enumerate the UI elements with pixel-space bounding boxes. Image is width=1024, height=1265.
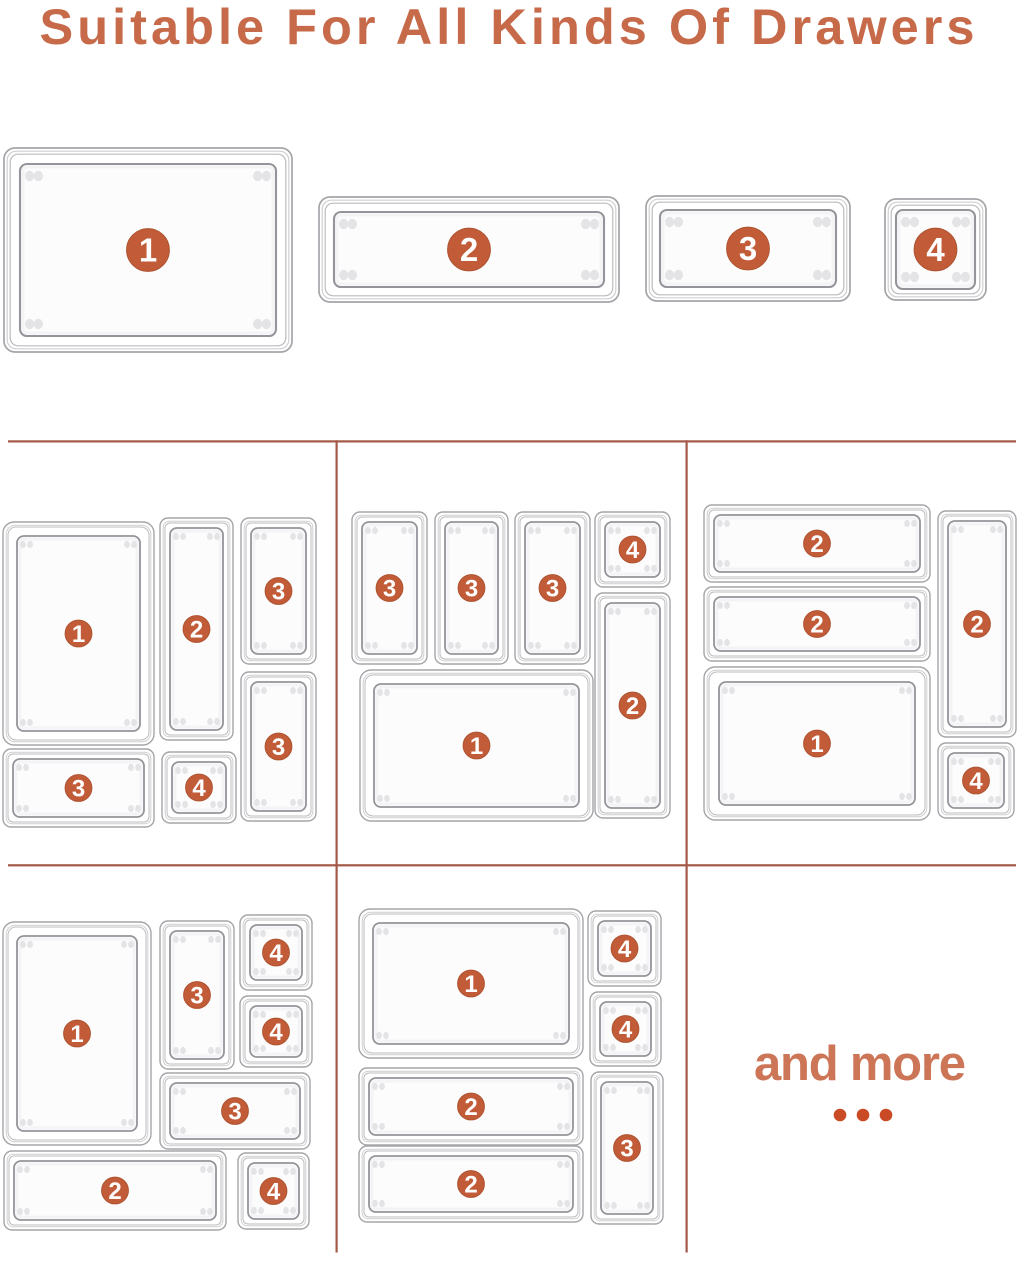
svg-text:2: 2 <box>464 1094 477 1121</box>
svg-text:3: 3 <box>272 734 285 761</box>
svg-text:1: 1 <box>72 621 85 648</box>
svg-text:2: 2 <box>190 617 203 644</box>
svg-text:4: 4 <box>269 1019 283 1046</box>
svg-text:4: 4 <box>969 768 983 795</box>
svg-text:Suitable For All Kinds Of Draw: Suitable For All Kinds Of Drawers <box>40 0 975 55</box>
svg-text:1: 1 <box>70 1021 83 1048</box>
svg-text:2: 2 <box>108 1178 121 1205</box>
svg-text:3: 3 <box>546 576 559 603</box>
svg-text:3: 3 <box>72 776 85 803</box>
svg-text:3: 3 <box>465 576 478 603</box>
svg-text:1: 1 <box>810 731 823 758</box>
svg-text:3: 3 <box>272 579 285 606</box>
svg-text:4: 4 <box>269 940 283 967</box>
svg-text:3: 3 <box>620 1136 633 1163</box>
svg-text:4: 4 <box>626 537 640 564</box>
svg-text:2: 2 <box>970 612 983 639</box>
svg-text:2: 2 <box>464 1172 477 1199</box>
svg-text:3: 3 <box>383 576 396 603</box>
svg-text:1: 1 <box>139 232 157 269</box>
svg-text:3: 3 <box>228 1099 241 1126</box>
svg-text:1: 1 <box>464 971 477 998</box>
svg-text:2: 2 <box>810 531 823 558</box>
svg-text:3: 3 <box>190 983 203 1010</box>
svg-text:2: 2 <box>626 693 639 720</box>
svg-text:1: 1 <box>470 733 483 760</box>
svg-text:4: 4 <box>267 1179 281 1206</box>
svg-text:4: 4 <box>926 231 945 268</box>
svg-text:3: 3 <box>739 230 757 267</box>
svg-text:2: 2 <box>810 612 823 639</box>
svg-text:2: 2 <box>460 231 478 268</box>
svg-text:and more: and more <box>754 1037 966 1091</box>
svg-text:4: 4 <box>192 775 206 802</box>
svg-text:4: 4 <box>618 936 632 963</box>
svg-text:4: 4 <box>619 1017 633 1044</box>
